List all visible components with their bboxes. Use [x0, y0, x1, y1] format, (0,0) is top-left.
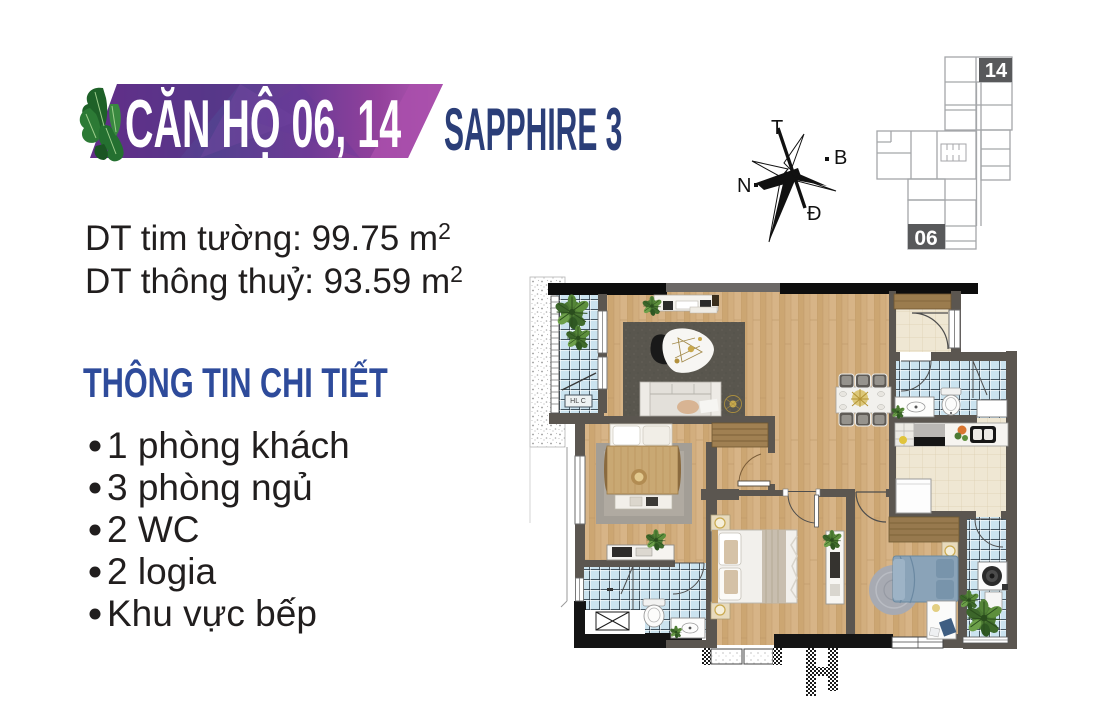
svg-text:THÔNG TIN CHI TIẾT: THÔNG TIN CHI TIẾT [83, 358, 388, 406]
svg-text:CĂN HỘ 06, 14: CĂN HỘ 06, 14 [125, 86, 401, 162]
svg-text:14: 14 [985, 60, 1008, 82]
svg-text:SAPPHIRE 3: SAPPHIRE 3 [444, 97, 622, 164]
svg-text:1 phòng khách: 1 phòng khách [107, 425, 350, 466]
svg-text:HL C: HL C [570, 398, 586, 405]
svg-text:06: 06 [914, 227, 937, 250]
svg-text:2 WC: 2 WC [107, 509, 200, 550]
svg-text:Khu vực bếp: Khu vực bếp [107, 593, 317, 634]
svg-text:3 phòng ngủ: 3 phòng ngủ [107, 467, 313, 508]
svg-text:2 logia: 2 logia [107, 551, 216, 592]
svg-text:DT tim tường: 99.75 m2: DT tim tường: 99.75 m2 [85, 218, 451, 258]
svg-text:N: N [737, 175, 751, 197]
svg-text:DT thông thuỷ: 93.59 m2: DT thông thuỷ: 93.59 m2 [85, 261, 463, 301]
svg-text:T: T [771, 117, 783, 139]
svg-text:B: B [834, 147, 847, 169]
svg-text:Đ: Đ [807, 203, 821, 225]
